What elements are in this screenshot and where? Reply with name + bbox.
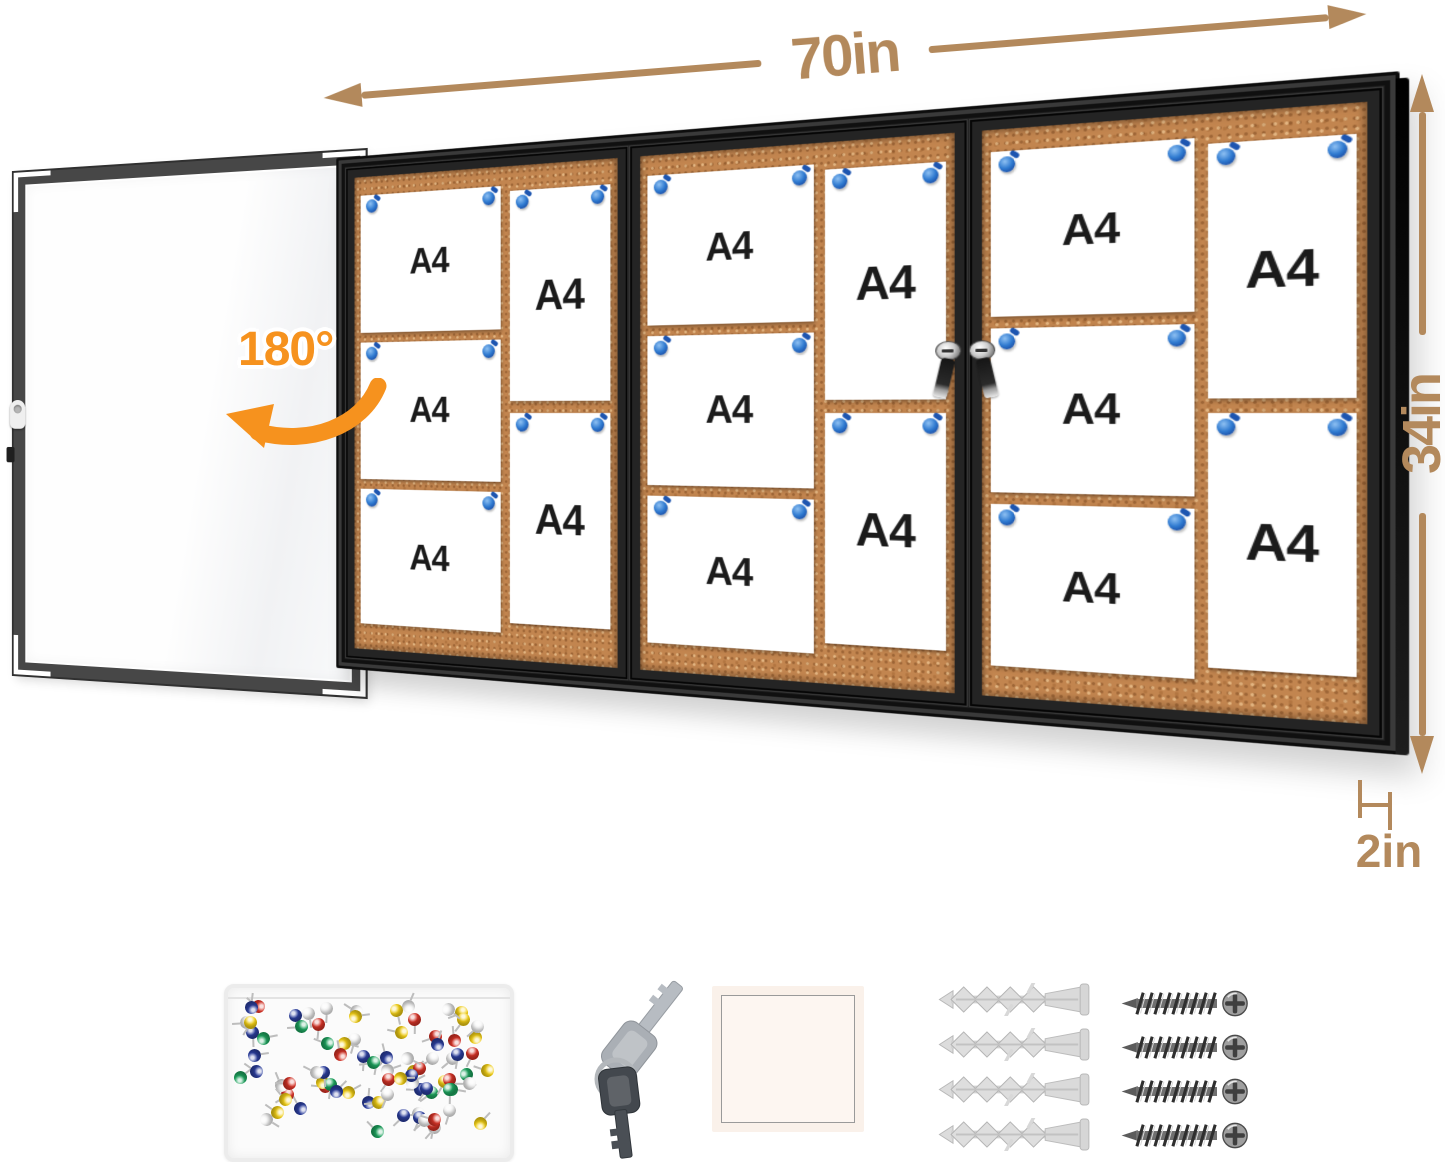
paper-label: A4 [1062, 385, 1119, 434]
push-pin-icon [463, 1077, 476, 1090]
push-pin-icon [482, 191, 494, 206]
mounting-screws [1112, 990, 1268, 1149]
a4-paper: A4 [510, 413, 610, 629]
push-pin-icon [482, 496, 494, 510]
push-pin-icon [653, 340, 667, 355]
dimension-line [1419, 112, 1426, 335]
lock-key-icon [932, 357, 955, 399]
board-section: A4 A4 A4 A4 A4 [348, 149, 626, 677]
push-pin-icon [366, 346, 378, 359]
push-pin-icon [247, 1048, 262, 1063]
push-pin-icon [999, 156, 1016, 173]
paper-label: A4 [409, 240, 448, 282]
a4-paper: A4 [647, 495, 814, 653]
door-latch [7, 447, 15, 462]
a4-paper: A4 [1208, 134, 1357, 398]
dimension-line [928, 14, 1328, 53]
paper-label: A4 [705, 388, 752, 433]
push-pin-icon [516, 418, 529, 432]
pushpin-box-pins [228, 988, 510, 1158]
keys-icon [550, 976, 700, 1162]
corner-bracket-icon [14, 635, 51, 677]
paper-label: A4 [535, 268, 584, 320]
width-dimension-label: 70in [789, 23, 901, 89]
a4-paper: A4 [510, 184, 610, 401]
paper-label: A4 [1245, 511, 1318, 575]
push-pin-icon [248, 1063, 266, 1081]
push-pin-icon [295, 1019, 309, 1033]
push-pin-icon [394, 1072, 407, 1085]
arrow-right-icon [1327, 2, 1367, 29]
section-lock [935, 341, 961, 399]
push-pin-icon [394, 1106, 412, 1124]
push-pin-icon [366, 493, 378, 507]
screw-icon [1112, 1034, 1268, 1061]
paper-label: A4 [705, 549, 752, 595]
door-swing-label: 180° [238, 322, 333, 377]
door-lock [10, 400, 25, 429]
screw-icon [1112, 990, 1268, 1017]
a4-paper: A4 [361, 186, 501, 332]
a4-paper: A4 [647, 165, 814, 326]
push-pin-icon [1217, 419, 1236, 436]
screw-icon [1112, 1078, 1268, 1105]
push-pin-icon [292, 1099, 310, 1117]
push-pin-icon [440, 1000, 458, 1018]
a4-paper: A4 [991, 139, 1194, 317]
a4-paper: A4 [647, 332, 814, 488]
push-pin-icon [472, 1115, 490, 1133]
push-pin-icon [366, 1055, 380, 1069]
board-section: A4 A4 A4 A4 A4 [632, 122, 965, 703]
wall-anchor-icon [930, 1118, 1108, 1151]
dimension-line [361, 59, 761, 98]
push-pin-icon [653, 180, 667, 195]
push-pin-icon [1168, 145, 1186, 163]
push-pin-icon [408, 1013, 421, 1026]
height-dimension-label-wrap: 34in [1372, 335, 1445, 513]
push-pin-icon [369, 1122, 387, 1140]
push-pin-icon [320, 1002, 334, 1016]
height-dimension-label: 34in [1395, 374, 1445, 474]
push-pin-icon [833, 418, 848, 433]
height-dimension: 34in [1392, 74, 1445, 774]
push-pin-icon [311, 1017, 325, 1031]
arrow-up-icon [1410, 74, 1434, 112]
wall-anchor-icon [930, 983, 1108, 1016]
board-section: A4 A4 A4 A4 A4 [972, 90, 1379, 735]
paper-label: A4 [1062, 563, 1119, 614]
push-pin-icon [393, 1025, 409, 1041]
wall-anchor-icon [930, 1028, 1108, 1061]
wall-anchors [930, 983, 1108, 1151]
paper-label: A4 [856, 253, 915, 311]
a4-paper: A4 [825, 413, 946, 651]
push-pin-icon [1328, 140, 1348, 159]
paper-label: A4 [409, 390, 448, 431]
adhesive-pad [712, 986, 864, 1132]
push-pin-icon [792, 504, 807, 519]
push-pin-icon [591, 189, 604, 204]
arrow-left-icon [323, 83, 363, 110]
paper-label: A4 [409, 538, 448, 580]
push-pin-icon [333, 1047, 348, 1062]
bulletin-board: A4 A4 A4 A4 A4 A4 A4 A4 A4 A4 A4 A4 A4 A… [336, 71, 1399, 755]
push-pin-icon [256, 1031, 271, 1046]
push-pin-icon [283, 1076, 297, 1090]
a4-paper: A4 [991, 323, 1194, 496]
paper-label: A4 [1062, 204, 1119, 255]
a4-paper: A4 [1208, 413, 1357, 677]
push-pin-icon [999, 333, 1016, 349]
section-lock [969, 340, 995, 398]
push-pin-icon [319, 1035, 336, 1052]
push-pin-icon [999, 509, 1016, 525]
wall-anchor-icon [930, 1073, 1108, 1106]
push-pin-icon [792, 170, 807, 186]
push-pin-icon [792, 337, 807, 352]
adhesive-pad-inner [721, 995, 855, 1123]
push-pin-icon [1217, 147, 1236, 165]
paper-label: A4 [705, 224, 752, 270]
push-pin-icon [591, 418, 604, 432]
push-pin-icon [833, 173, 848, 189]
screw-icon [1112, 1122, 1268, 1149]
a4-paper: A4 [991, 504, 1194, 679]
push-pin-icon [443, 1082, 456, 1095]
push-pin-icon [1328, 419, 1348, 436]
dimension-line [1419, 513, 1426, 736]
push-pin-icon [1168, 513, 1186, 530]
push-pin-icon [653, 500, 667, 515]
door-swing-callout: 180° [238, 322, 333, 377]
lock-key-icon [975, 357, 998, 399]
rotate-arrow-icon [224, 378, 388, 462]
push-pin-icon [468, 1017, 486, 1035]
push-pin-icon [232, 1068, 250, 1086]
depth-bracket-icon [1358, 780, 1392, 830]
push-pin-icon [516, 194, 529, 209]
a4-paper: A4 [361, 488, 501, 632]
push-pin-icon [448, 1033, 462, 1047]
paper-label: A4 [1245, 236, 1318, 300]
push-pin-icon [479, 1062, 496, 1079]
pushpin-box [224, 984, 514, 1162]
push-pin-icon [423, 1050, 441, 1068]
push-pin-icon [482, 344, 494, 358]
push-pin-icon [441, 1103, 457, 1119]
corner-bracket-icon [14, 170, 51, 212]
push-pin-icon [923, 418, 939, 434]
push-pin-icon [1168, 329, 1186, 346]
depth-dimension-label: 2in [1334, 824, 1444, 878]
push-pin-icon [923, 167, 939, 184]
push-pin-icon [366, 199, 378, 213]
arrow-down-icon [1410, 736, 1434, 774]
push-pin-icon [464, 1045, 481, 1062]
paper-label: A4 [856, 501, 915, 558]
a4-paper: A4 [825, 161, 946, 399]
paper-label: A4 [535, 494, 584, 546]
